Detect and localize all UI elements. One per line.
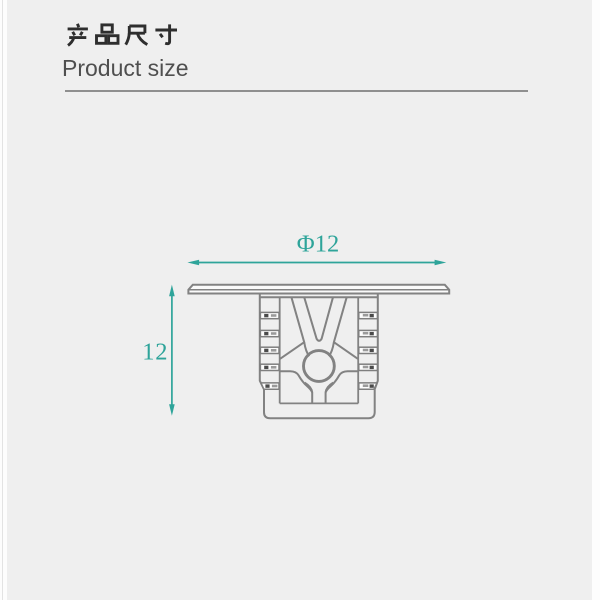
svg-text:12: 12	[142, 339, 168, 366]
svg-text:Φ12: Φ12	[297, 231, 339, 258]
